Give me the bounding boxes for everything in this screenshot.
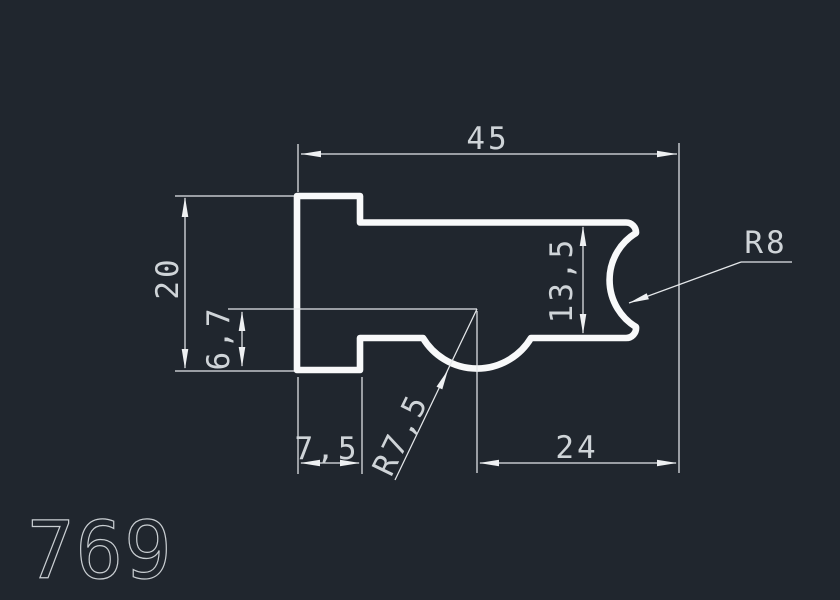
dim-67-label: 6,7 [201,306,237,371]
dim-r8-label: R8 [744,225,787,261]
arrow-20-top [182,197,189,217]
part-number: 769 [27,505,173,597]
arrow-45-left [301,151,321,158]
dim-135-label: 13,5 [544,237,580,324]
arrow-45-right [657,151,677,158]
arrow-135-bottom [580,314,587,334]
arrow-67-top [239,311,246,331]
dim-75-label: 7,5 [295,431,360,467]
arrow-20-bottom [182,349,189,369]
dim-r75-label: R7,5 [366,388,436,482]
arrow-r8 [629,293,649,303]
profile-path [297,196,636,370]
arrow-135-top [580,226,587,246]
dim-20-label: 20 [150,256,186,299]
arrow-24-right [657,460,677,467]
dim-24-label: 24 [555,430,598,466]
technical-drawing: 45 7,5 24 R8 20 6,7 13,5 R7,5 769 [0,0,840,600]
dimension-labels: 45 7,5 24 R8 20 6,7 13,5 R7,5 [150,121,788,481]
dimension-lines [175,143,792,480]
cad-canvas: 45 7,5 24 R8 20 6,7 13,5 R7,5 769 [0,0,840,600]
arrow-24-left [479,460,499,467]
dim-45-label: 45 [466,121,509,157]
arrow-r75 [437,370,449,389]
profile-outline [297,196,636,370]
arrow-67-bottom [239,347,246,367]
